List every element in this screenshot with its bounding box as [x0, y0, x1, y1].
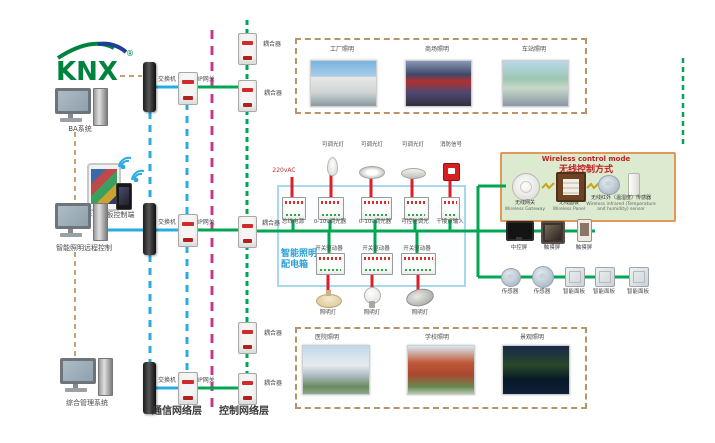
coupler-label: 耦合器 — [264, 381, 282, 388]
line-coupler-icon — [238, 373, 257, 405]
hospital-photo — [302, 345, 370, 395]
switch-actuator-icon — [316, 253, 345, 275]
ba-system-label: BA系统 — [68, 126, 92, 134]
ip-gateway-label: IP网关 — [197, 77, 214, 84]
management-computer — [60, 358, 112, 396]
sensor-icon — [501, 268, 521, 287]
dimmable-lamp-label: 可调光灯 — [402, 142, 424, 148]
svg-text:®: ® — [126, 49, 134, 58]
coupler-label: 耦合器 — [262, 221, 280, 228]
wireless-sensor-icon — [628, 173, 640, 196]
smart-panel-label: 智能面板 — [563, 289, 585, 295]
ceiling-light-icon — [401, 168, 426, 179]
line-coupler-icon — [238, 33, 257, 65]
dimmer-module-icon — [318, 197, 344, 220]
mall-lighting-label: 商场照明 — [425, 47, 449, 54]
tower-icon — [93, 88, 108, 126]
switch-actuator-label: 开关驱动器 — [362, 246, 390, 252]
lighting-control-label: 智能照明远程控制 — [56, 245, 112, 253]
thyristor-dimmer-label: 可控硅调光 — [401, 219, 429, 225]
ethernet-switch-icon — [143, 203, 156, 255]
tower-icon — [98, 358, 113, 396]
phone-icon — [116, 183, 132, 210]
factory-photo — [310, 60, 377, 107]
sensor-icon — [532, 266, 554, 288]
distribution-box-title: 智能照明配电箱 — [281, 249, 317, 272]
lighting-lamp-icon — [316, 294, 342, 308]
sensor-label: 传感器 — [502, 289, 519, 295]
coupler-label: 耦合器 — [263, 42, 281, 49]
switch-label: 交换机 — [158, 77, 176, 84]
fire-alarm-icon — [443, 163, 460, 181]
lighting-lamp-icon — [364, 287, 381, 304]
smart-panel-icon — [629, 267, 649, 287]
bus-power-module-icon — [282, 197, 306, 220]
wireless-panel-icon — [556, 172, 586, 202]
landscape-lighting-label: 景观照明 — [520, 335, 544, 342]
monitor-icon — [60, 358, 96, 384]
switch-actuator-icon — [361, 253, 393, 275]
touch-screen-label: 触摸屏 — [576, 245, 593, 251]
dimmable-lamp-label: 可调光灯 — [322, 142, 344, 148]
comm-layer-caption: 通信网络层 — [152, 402, 202, 417]
line-coupler-icon — [238, 322, 257, 354]
smart-panel-icon — [595, 267, 615, 287]
coupler-label: 耦合器 — [264, 91, 282, 98]
sensor-label: 传感器 — [534, 289, 551, 295]
lighting-lamp-label: 照明灯 — [412, 310, 429, 316]
monitor-icon — [55, 88, 91, 114]
dimmer-module-icon — [361, 197, 392, 220]
wireless-sensor-icon — [598, 175, 620, 195]
switch-actuator-icon — [401, 253, 436, 275]
bus-power-label: 总线电源 — [282, 219, 304, 225]
line-coupler-icon — [238, 216, 257, 248]
ethernet-switch-icon — [143, 62, 156, 112]
dry-contact-label: 干接点输入 — [436, 219, 464, 225]
touch-screen-label: 触摸屏 — [544, 245, 561, 251]
line-coupler-icon — [238, 80, 257, 112]
monitor-icon — [55, 203, 91, 229]
mall-photo — [405, 60, 472, 107]
wireless-panel-label: 无线面板Wireless Panel — [553, 201, 585, 212]
switch-actuator-label: 开关驱动器 — [403, 246, 431, 252]
knx-logo: KNX ® — [52, 38, 136, 86]
coupler-label: 耦合器 — [264, 331, 282, 338]
wireless-gateway-label: 无线网关Wireless Gateway — [505, 201, 545, 212]
school-lighting-label: 学校照明 — [425, 335, 449, 342]
wireless-sensor-label: 无线红外（温湿度）传感器Wireless infrared (Temperatu… — [586, 196, 656, 212]
ip-gateway-label: IP网关 — [197, 220, 214, 227]
ba-system-computer — [55, 88, 107, 126]
knx-lighting-system-diagram: KNX ® BA系统 手机平板控制端 智能照明远程控制 综合管理系统 交换机 I… — [0, 0, 715, 443]
smart-panel-icon — [565, 267, 585, 287]
control-layer-caption: 控制网络层 — [219, 402, 269, 417]
dimmable-lamp-label: 可调光灯 — [361, 142, 383, 148]
thyristor-dimmer-module-icon — [404, 197, 429, 220]
landscape-photo — [502, 345, 570, 395]
lighting-lamp-label: 照明灯 — [364, 310, 381, 316]
ip-gateway-icon — [178, 214, 198, 247]
downlight-icon — [359, 166, 385, 179]
central-screen-icon — [506, 221, 534, 241]
wifi-icon — [117, 155, 133, 169]
svg-text:KNX: KNX — [56, 57, 118, 86]
lighting-lamp-label: 照明灯 — [320, 310, 337, 316]
management-system-label: 综合管理系统 — [66, 400, 108, 408]
dimmable-lamp-icon — [327, 157, 338, 176]
central-screen-label: 中控屏 — [511, 245, 528, 251]
factory-lighting-label: 工厂照明 — [330, 47, 354, 54]
mains-power-label: 220vAC — [272, 168, 295, 175]
dimmer-label: 0-10v调光器 — [314, 219, 346, 225]
switch-label: 交换机 — [158, 220, 176, 227]
ip-gateway-label: IP网关 — [197, 378, 214, 385]
tower-icon — [93, 203, 108, 241]
station-photo — [502, 60, 569, 107]
ip-gateway-icon — [178, 372, 198, 405]
lighting-control-computer — [55, 203, 107, 241]
station-lighting-label: 车站照明 — [522, 47, 546, 54]
rf-link-icon — [541, 181, 555, 191]
hospital-lighting-label: 医院照明 — [315, 335, 339, 342]
smart-panel-label: 智能面板 — [627, 289, 649, 295]
dimmer-label: 0-10v调光器 — [359, 219, 391, 225]
touch-screen-icon — [541, 221, 565, 244]
wifi-icon — [130, 168, 146, 182]
ip-gateway-icon — [178, 72, 198, 105]
smart-panel-label: 智能面板 — [593, 289, 615, 295]
touch-screen-icon — [577, 219, 592, 242]
fire-signal-label: 消防信号 — [440, 142, 462, 148]
dry-contact-module-icon — [441, 197, 460, 220]
switch-label: 交换机 — [158, 378, 176, 385]
school-photo — [407, 345, 475, 395]
switch-actuator-label: 开关驱动器 — [315, 246, 343, 252]
wireless-gateway-icon — [512, 173, 540, 201]
